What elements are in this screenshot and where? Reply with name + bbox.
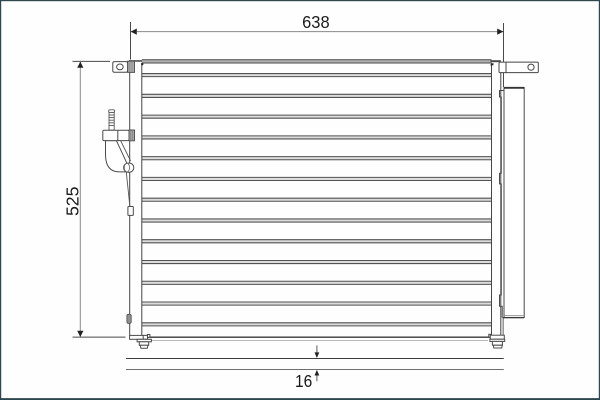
svg-text:16: 16 [295, 371, 312, 391]
svg-text:638: 638 [302, 12, 330, 32]
svg-text:525: 525 [63, 186, 83, 216]
